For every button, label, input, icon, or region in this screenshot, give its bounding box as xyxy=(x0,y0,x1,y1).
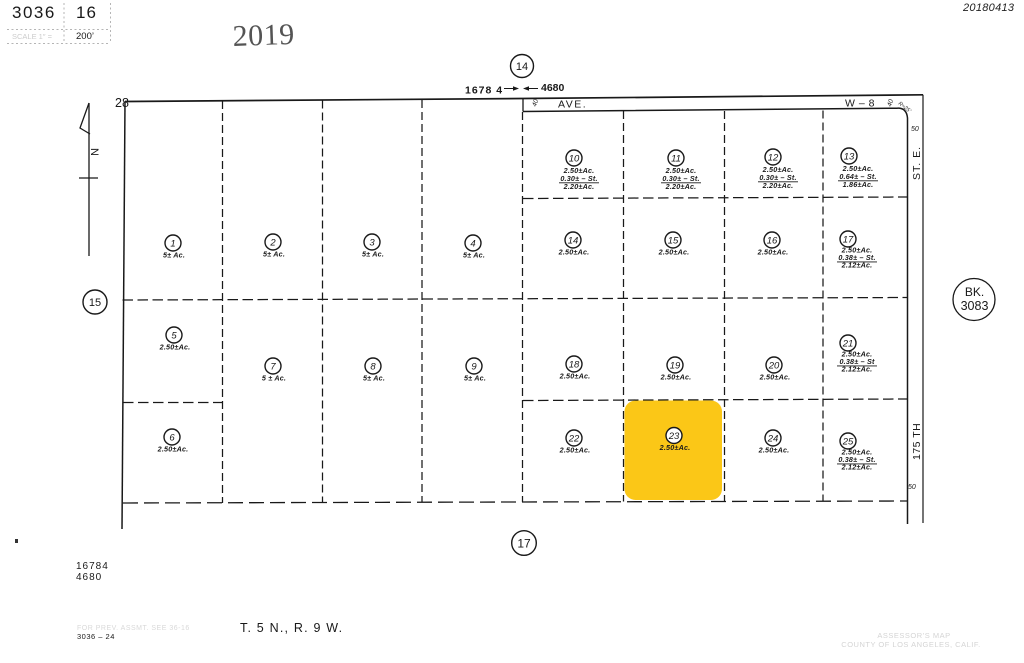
svg-text:3036: 3036 xyxy=(12,3,56,22)
svg-text:8: 8 xyxy=(370,361,376,372)
svg-text:5 ± Ac.: 5 ± Ac. xyxy=(262,374,286,383)
svg-text:5± Ac.: 5± Ac. xyxy=(463,251,485,260)
svg-text:5: 5 xyxy=(171,330,177,341)
svg-text:T. 5 N., R. 9 W.: T. 5 N., R. 9 W. xyxy=(240,621,343,635)
svg-text:50: 50 xyxy=(908,484,916,491)
svg-text:175 TH: 175 TH xyxy=(911,423,923,460)
svg-text:16: 16 xyxy=(76,3,97,22)
svg-text:25: 25 xyxy=(842,436,854,447)
svg-text:14: 14 xyxy=(516,61,528,73)
svg-text:2.50±Ac.: 2.50±Ac. xyxy=(558,248,590,257)
svg-text:2.12±Ac.: 2.12±Ac. xyxy=(841,261,873,270)
svg-text:5± Ac.: 5± Ac. xyxy=(163,251,185,260)
svg-text:10: 10 xyxy=(569,153,580,164)
svg-text:2.20±Ac.: 2.20±Ac. xyxy=(762,181,794,190)
svg-text:3: 3 xyxy=(369,237,375,248)
svg-text:4: 4 xyxy=(470,238,475,249)
svg-text:2.20±Ac.: 2.20±Ac. xyxy=(665,182,697,191)
svg-text:15: 15 xyxy=(89,297,101,309)
svg-text:17: 17 xyxy=(843,234,854,245)
svg-text:3036 – 24: 3036 – 24 xyxy=(77,632,115,641)
svg-text:2.50±Ac.: 2.50±Ac. xyxy=(559,446,591,455)
svg-text:4680: 4680 xyxy=(76,572,102,583)
svg-text:24: 24 xyxy=(767,433,779,444)
svg-text:16784: 16784 xyxy=(76,561,109,572)
svg-text:2.50±Ac.: 2.50±Ac. xyxy=(757,248,789,257)
svg-text:20: 20 xyxy=(768,360,780,371)
svg-text:N: N xyxy=(88,148,100,156)
svg-text:20180413: 20180413 xyxy=(962,2,1015,14)
svg-text:1: 1 xyxy=(170,238,175,249)
svg-text:ASSESSOR’S MAP: ASSESSOR’S MAP xyxy=(877,631,950,640)
svg-text:19: 19 xyxy=(670,360,681,371)
svg-text:AVE.: AVE. xyxy=(558,99,587,111)
svg-text:11: 11 xyxy=(671,153,681,164)
svg-text:22: 22 xyxy=(568,433,580,444)
svg-text:2.12±Ac.: 2.12±Ac. xyxy=(841,365,873,374)
svg-text:2.20±Ac.: 2.20±Ac. xyxy=(563,182,595,191)
svg-text:2.50±Ac.: 2.50±Ac. xyxy=(559,372,591,381)
svg-text:13: 13 xyxy=(844,151,855,162)
svg-text:1678 4: 1678 4 xyxy=(465,85,503,97)
svg-text:2.50±Ac.: 2.50±Ac. xyxy=(759,373,791,382)
svg-text:50: 50 xyxy=(911,126,919,133)
svg-text:2: 2 xyxy=(269,237,276,248)
svg-text:6: 6 xyxy=(169,432,175,443)
svg-text:2.50±Ac.: 2.50±Ac. xyxy=(159,343,191,352)
svg-text:7: 7 xyxy=(270,361,276,372)
svg-text:18: 18 xyxy=(569,359,580,370)
svg-text:16: 16 xyxy=(767,235,778,246)
svg-text:23: 23 xyxy=(668,431,680,442)
svg-text:2.50±Ac.: 2.50±Ac. xyxy=(658,248,690,257)
svg-text:BK.: BK. xyxy=(965,285,984,299)
svg-text:2.50±Ac.: 2.50±Ac. xyxy=(659,443,691,452)
svg-text:9: 9 xyxy=(471,361,477,372)
svg-text:SCALE 1″ =: SCALE 1″ = xyxy=(12,32,53,41)
svg-text:1.86±Ac.: 1.86±Ac. xyxy=(843,180,874,189)
svg-text:12: 12 xyxy=(768,152,779,163)
svg-text:28: 28 xyxy=(115,96,129,110)
svg-text:ST. E.: ST. E. xyxy=(911,146,923,180)
svg-text:17: 17 xyxy=(517,536,531,550)
svg-text:2.50±Ac.: 2.50±Ac. xyxy=(758,446,790,455)
svg-text:2.50±Ac.: 2.50±Ac. xyxy=(660,373,692,382)
svg-text:2019: 2019 xyxy=(232,18,295,53)
svg-text:2.50±Ac.: 2.50±Ac. xyxy=(157,445,189,454)
svg-text:W – 8: W – 8 xyxy=(845,98,875,110)
svg-text:3083: 3083 xyxy=(961,299,989,313)
svg-text:5± Ac.: 5± Ac. xyxy=(362,250,384,259)
svg-text:2.12±Ac.: 2.12±Ac. xyxy=(841,463,873,472)
svg-text:FOR PREV. ASSMT. SEE 36-16: FOR PREV. ASSMT. SEE 36-16 xyxy=(77,625,190,632)
svg-text:200’: 200’ xyxy=(76,31,94,42)
svg-text:14: 14 xyxy=(568,235,579,246)
svg-text:21: 21 xyxy=(842,338,854,349)
svg-text:5± Ac.: 5± Ac. xyxy=(363,374,385,383)
svg-text:COUNTY OF LOS ANGELES, CALIF.: COUNTY OF LOS ANGELES, CALIF. xyxy=(841,640,980,649)
svg-text:4680: 4680 xyxy=(541,82,565,94)
svg-text:15: 15 xyxy=(668,235,679,246)
svg-text:5± Ac.: 5± Ac. xyxy=(263,250,285,259)
svg-text:5± Ac.: 5± Ac. xyxy=(464,374,486,383)
